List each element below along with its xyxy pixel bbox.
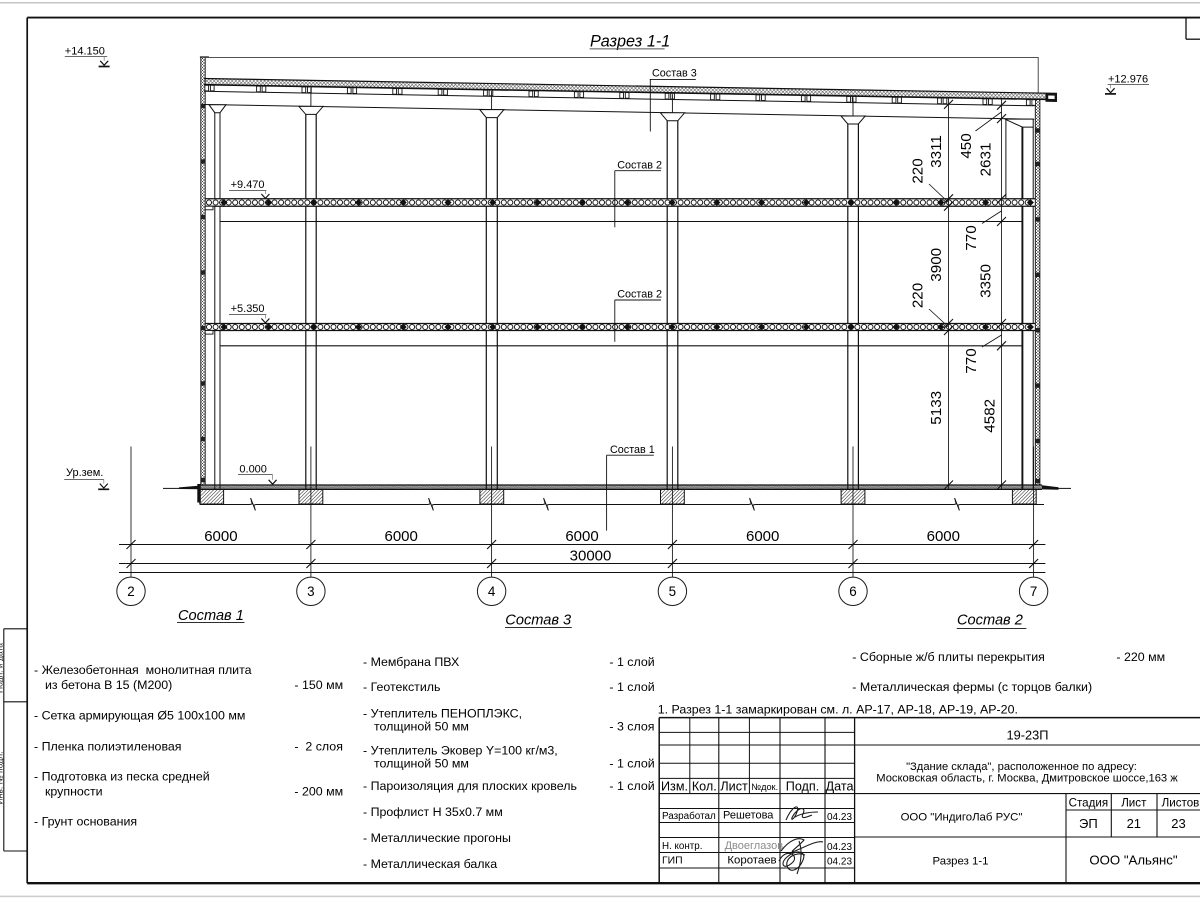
svg-text:220: 220 [910, 283, 927, 308]
svg-text:Состав 2: Состав 2 [617, 159, 662, 171]
svg-text:Коротаев: Коротаев [727, 854, 776, 866]
svg-text:- Геотекстиль: - Геотекстиль [363, 680, 440, 694]
svg-text:- Металлическая балка: - Металлическая балка [363, 857, 497, 871]
svg-text:4582: 4582 [982, 399, 999, 433]
svg-text:1. Разрез 1-1 замаркирован см.: 1. Разрез 1-1 замаркирован см. л. АР-17,… [658, 702, 1018, 716]
svg-text:+12.976: +12.976 [1108, 74, 1148, 86]
svg-text:- Профлист Н 35x0.7 мм: - Профлист Н 35x0.7 мм [363, 805, 503, 819]
svg-text:6000: 6000 [204, 528, 237, 545]
svg-text:23: 23 [1171, 816, 1185, 831]
svg-text:3: 3 [307, 584, 314, 599]
svg-text:Решетова: Решетова [723, 810, 774, 822]
svg-text:19-23П: 19-23П [1007, 728, 1049, 743]
svg-text:+5.350: +5.350 [231, 303, 265, 315]
svg-text:21: 21 [1127, 816, 1141, 831]
svg-text:- 1 слой: - 1 слой [609, 655, 654, 669]
svg-text:770: 770 [963, 348, 980, 373]
svg-text:толщиной 50 мм: толщиной 50 мм [374, 757, 469, 771]
svg-text:- Металлическая фермы (с торцо: - Металлическая фермы (с торцов балки) [852, 680, 1092, 694]
svg-text:ООО "ИндигоЛаб РУС": ООО "ИндигоЛаб РУС" [901, 812, 1023, 824]
svg-text:- 1 слой: - 1 слой [609, 779, 654, 793]
svg-text:- Пленка полиэтиленовая: - Пленка полиэтиленовая [34, 739, 182, 753]
svg-text:0.000: 0.000 [239, 463, 267, 475]
svg-text:ЭП: ЭП [1079, 816, 1098, 831]
svg-text:3350: 3350 [978, 264, 995, 298]
svg-text:"Здание склада", расположенное: "Здание склада", расположенное по адресу… [906, 761, 1137, 773]
svg-text:Состав 3: Состав 3 [652, 68, 697, 80]
svg-text:Московская область, г. Москва,: Московская область, г. Москва, Дмитровск… [876, 773, 1178, 785]
svg-text:- 3 слоя: - 3 слоя [609, 720, 654, 734]
svg-text:5133: 5133 [928, 391, 945, 425]
svg-text:2631: 2631 [978, 143, 995, 177]
svg-text:крупности: крупности [45, 784, 103, 798]
svg-text:- 1 слой: - 1 слой [609, 680, 654, 694]
svg-text:6000: 6000 [927, 528, 960, 545]
svg-text:толщиной 50 мм: толщиной 50 мм [374, 720, 469, 734]
svg-text:Состав 1: Состав 1 [178, 608, 244, 624]
svg-text:Ур.зем.: Ур.зем. [66, 467, 103, 479]
svg-text:- Сборные ж/б плиты перекрытия: - Сборные ж/б плиты перекрытия [852, 650, 1045, 664]
svg-text:Листов: Листов [1162, 797, 1200, 810]
svg-text:Состав 2: Состав 2 [957, 612, 1023, 628]
svg-text:04.23: 04.23 [827, 856, 852, 867]
svg-text:Разрез 1-1: Разрез 1-1 [590, 32, 670, 50]
svg-text:Разработал: Разработал [662, 811, 716, 822]
svg-text:- 200 мм: - 200 мм [294, 784, 343, 798]
svg-text:из бетона В 15 (М200): из бетона В 15 (М200) [45, 678, 172, 692]
svg-text:450: 450 [958, 133, 975, 158]
svg-text:Изм.: Изм. [661, 780, 688, 794]
svg-text:- Грунт основания: - Грунт основания [34, 814, 137, 828]
svg-text:Состав 3: Состав 3 [505, 612, 571, 628]
svg-text:Подп.: Подп. [786, 780, 819, 794]
svg-text:7: 7 [1030, 584, 1037, 599]
svg-text:Подп. и дата: Подп. и дата [0, 643, 5, 693]
svg-text:Инв. № подл.: Инв. № подл. [0, 752, 5, 805]
svg-text:- 220 мм: - 220 мм [1116, 650, 1165, 664]
svg-text:- Пароизоляция для плоских кро: - Пароизоляция для плоских кровель [363, 779, 577, 793]
svg-text:Состав 1: Состав 1 [610, 444, 655, 456]
svg-text:- 2 слоя: - 2 слоя [294, 739, 343, 753]
svg-text:Стадия: Стадия [1069, 797, 1109, 810]
svg-text:Н. контр.: Н. контр. [662, 841, 702, 852]
svg-text:30000: 30000 [570, 548, 612, 565]
svg-text:2: 2 [127, 584, 134, 599]
svg-text:- Мембрана ПВХ: - Мембрана ПВХ [363, 655, 459, 669]
svg-text:Двоеглазов: Двоеглазов [725, 840, 784, 852]
svg-text:- Утеплитель Эковер Y=100 кг/м: - Утеплитель Эковер Y=100 кг/м3, [363, 744, 558, 758]
svg-text:6000: 6000 [565, 528, 598, 545]
svg-text:ГИП: ГИП [662, 856, 683, 867]
svg-text:220: 220 [910, 158, 927, 183]
svg-text:04.23: 04.23 [827, 812, 852, 823]
svg-text:04.23: 04.23 [827, 842, 852, 853]
svg-text:Кол.: Кол. [692, 780, 717, 794]
svg-text:6000: 6000 [385, 528, 418, 545]
svg-text:Разрез 1-1: Разрез 1-1 [933, 855, 989, 867]
svg-text:Лист: Лист [1121, 797, 1147, 810]
svg-text:- Железобетонная монолитная п: - Железобетонная монолитная плита [34, 663, 252, 677]
svg-text:- Металлические прогоны: - Металлические прогоны [363, 831, 511, 845]
svg-text:6: 6 [849, 584, 856, 599]
svg-text:Дата: Дата [826, 780, 854, 794]
svg-text:4: 4 [488, 584, 496, 599]
svg-text:- Сетка армирующая Ø5 100x100: - Сетка армирующая Ø5 100x100 мм [34, 708, 245, 722]
svg-text:770: 770 [963, 225, 980, 250]
svg-text:- Утеплитель ПЕНОПЛЭКС,: - Утеплитель ПЕНОПЛЭКС, [363, 707, 522, 721]
svg-text:Лист: Лист [720, 780, 748, 794]
svg-text:+14.150: +14.150 [65, 46, 105, 58]
svg-text:- 150 мм: - 150 мм [294, 678, 343, 692]
svg-text:- 1 слой: - 1 слой [609, 757, 654, 771]
svg-text:- Подготовка из песка средней: - Подготовка из песка средней [34, 769, 210, 783]
svg-text:№док.: №док. [751, 782, 778, 792]
svg-text:ООО "Альянс": ООО "Альянс" [1089, 853, 1177, 868]
svg-text:6000: 6000 [746, 528, 779, 545]
svg-text:Состав 2: Состав 2 [617, 289, 662, 301]
svg-text:5: 5 [669, 584, 676, 599]
svg-text:+9.470: +9.470 [231, 179, 265, 191]
svg-text:3311: 3311 [928, 135, 945, 168]
svg-text:3900: 3900 [928, 248, 945, 282]
